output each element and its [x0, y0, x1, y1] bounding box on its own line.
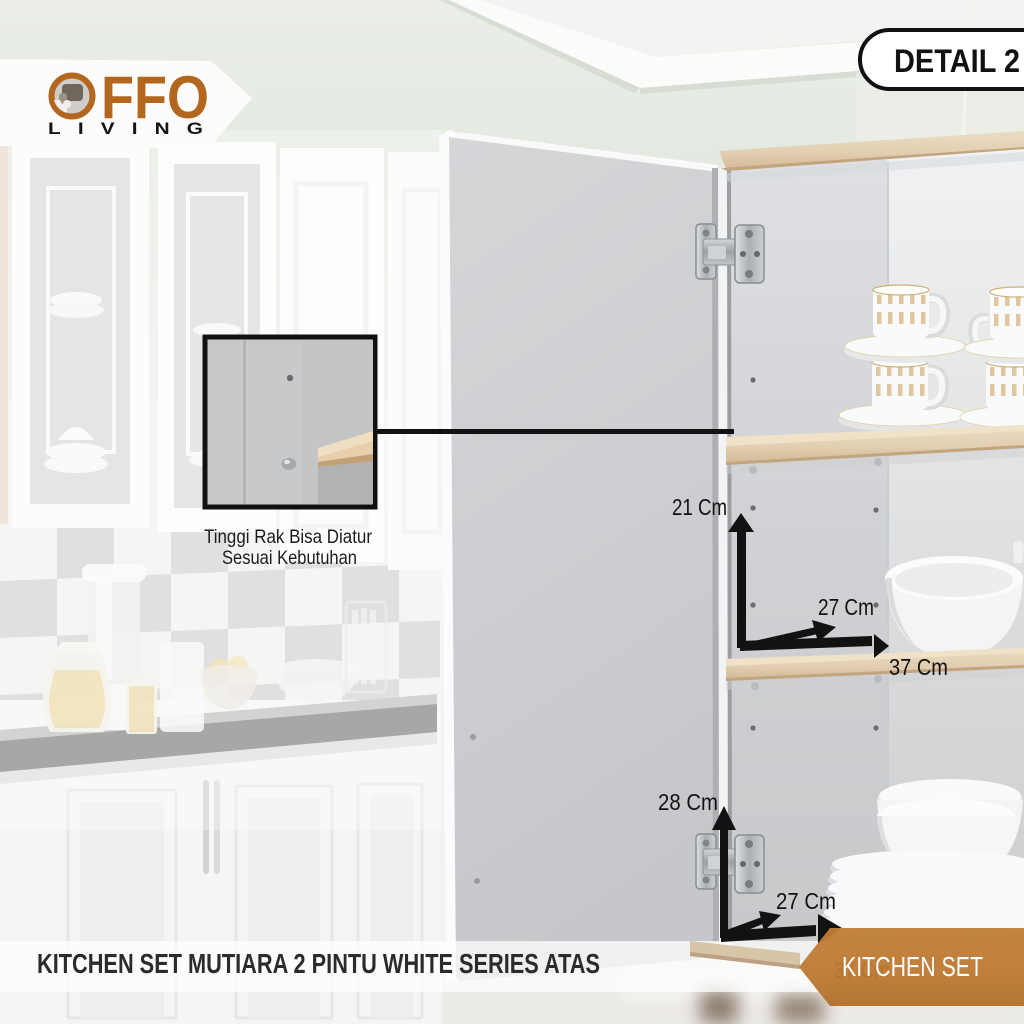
svg-text:KITCHEN SET: KITCHEN SET: [842, 951, 983, 982]
svg-text:21 Cm: 21 Cm: [672, 494, 727, 520]
svg-text:27 Cm: 27 Cm: [776, 888, 836, 914]
svg-text:KITCHEN SET MUTIARA 2 PINTU WH: KITCHEN SET MUTIARA 2 PINTU WHITE SERIES…: [37, 948, 600, 979]
svg-text:LIVING: LIVING: [48, 119, 220, 138]
svg-text:Tinggi Rak Bisa Diatur: Tinggi Rak Bisa Diatur: [204, 526, 372, 548]
svg-text:Sesuai Kebutuhan: Sesuai Kebutuhan: [222, 547, 357, 569]
svg-text:DETAIL 2: DETAIL 2: [894, 43, 1020, 79]
svg-text:37 Cm: 37 Cm: [889, 654, 948, 680]
svg-text:28 Cm: 28 Cm: [658, 789, 718, 815]
svg-text:27 Cm: 27 Cm: [818, 594, 874, 620]
